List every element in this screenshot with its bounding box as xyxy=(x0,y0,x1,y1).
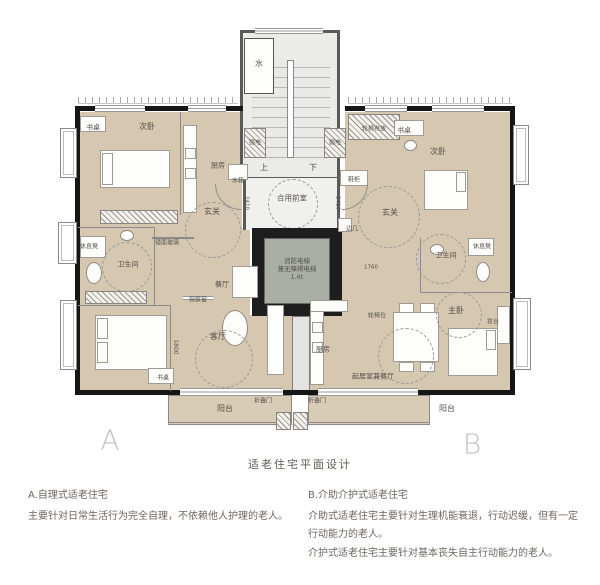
bay-window-a-master xyxy=(60,300,77,370)
b-toilet xyxy=(476,262,490,282)
b-kitchen-counter-top xyxy=(310,300,348,312)
partition-a-master-top xyxy=(78,305,170,306)
a-bed2-pillow xyxy=(102,153,113,185)
a-desk2-label: 书桌 xyxy=(157,374,169,382)
a-sink xyxy=(185,168,196,179)
duct-hatch-2 xyxy=(293,412,308,430)
legend-type-a: A.自理式适老住宅 主要针对日常生活行为完全自理，不依赖他人护理的老人。 xyxy=(28,487,290,526)
dimension-ticks-right xyxy=(348,97,512,104)
dim-1800: 1800 xyxy=(171,339,179,354)
legend-a-body: 主要针对日常生活行为完全自理，不依赖他人护理的老人。 xyxy=(28,508,290,527)
bay-window-b-master xyxy=(513,298,531,370)
legend-a-heading: A.自理式适老住宅 xyxy=(28,487,290,506)
bay-window-a-bath xyxy=(58,222,77,264)
bay-window-a-bedroom xyxy=(60,128,77,178)
fire-elevator-label: 消防电梯 兼无障碍电梯 1.6t xyxy=(278,257,317,281)
a-folding-door-label: 折叠门 xyxy=(254,397,272,405)
a-living-label: 客厅 xyxy=(210,332,226,342)
b-kitchen-label: 厨房 xyxy=(316,346,330,355)
window-a-top-2 xyxy=(188,105,226,112)
partition-a-bath-top xyxy=(78,227,154,228)
b-folding-door-label: 折叠门 xyxy=(308,397,326,405)
legend-type-b: B.介助介护式适老住宅 介助式适老住宅主要针对生理机能衰退，行动迟缓，但有一定行… xyxy=(308,487,580,563)
a-master-pillow-2 xyxy=(97,342,108,363)
a-wardrobe-2 xyxy=(85,291,147,304)
stair-divider xyxy=(287,60,294,158)
service-duct xyxy=(292,316,310,392)
bay-window-b-bedroom xyxy=(513,125,529,185)
a-mirror-glass-label: 镜面玻璃 xyxy=(155,239,179,247)
dimension-ticks-left xyxy=(78,97,238,104)
a-dining-label: 餐厅 xyxy=(215,281,229,290)
b-desk-chair xyxy=(404,140,417,151)
strong-electric-label: 强电 xyxy=(249,139,261,147)
unit-b-balcony xyxy=(308,395,430,425)
a-bedroom2-label: 次卧 xyxy=(139,122,155,132)
b-master-pillow xyxy=(486,330,496,350)
legend-b-heading: B.介助介护式适老住宅 xyxy=(308,487,580,506)
b-wheelchair-spot-label: 轮椅位 xyxy=(368,312,386,320)
b-bed2-pillow xyxy=(456,172,466,192)
a-wardrobe-1 xyxy=(100,210,178,224)
a-sofa xyxy=(267,305,284,375)
a-toilet xyxy=(86,262,102,284)
floorplan-image: 水上下合用前室消防电梯 兼无障碍电梯 1.6t强电弱电水箱鞋柜边几轮椅存放书桌次… xyxy=(0,0,600,585)
stairs-down-label: 下 xyxy=(309,163,317,173)
b-bedroom2-label: 次卧 xyxy=(430,147,446,157)
wheelchair-storage-label: 轮椅存放 xyxy=(362,125,386,133)
b-dining-chair-1 xyxy=(399,303,414,313)
dim-1760: 1760 xyxy=(364,265,378,272)
duct-hatch-1 xyxy=(276,412,291,430)
unit-a-marker: A xyxy=(100,424,119,457)
b-stove xyxy=(312,322,323,333)
a-observation-window-label: 观察窗 xyxy=(189,296,207,304)
water-tank-label: 水箱 xyxy=(232,177,244,185)
a-balcony-label: 阳台 xyxy=(217,404,233,414)
legend-b-body-2: 介护式适老住宅主要针对基本丧失自主行动能力的老人。 xyxy=(308,545,580,564)
partition-a-kitchen xyxy=(180,112,181,215)
stairs-up-label: 上 xyxy=(260,163,268,173)
a-kitchen-label: 厨房 xyxy=(211,162,225,171)
shoe-cabinet-label: 鞋柜 xyxy=(348,176,360,184)
a-stove xyxy=(185,148,196,159)
b-balcony-label: 阳台 xyxy=(439,404,455,414)
a-bathroom-label: 卫生间 xyxy=(118,261,139,270)
dim-2410-left: 2410 xyxy=(243,196,250,210)
b-master-bedroom-label: 主卧 xyxy=(448,306,464,316)
a-entry-label: 玄关 xyxy=(204,207,220,217)
a-rest-bench-label: 休息凳 xyxy=(80,243,98,251)
b-bathroom-label: 卫生间 xyxy=(436,252,457,261)
window-a-top-1 xyxy=(95,105,145,112)
window-b-top-1 xyxy=(365,105,407,112)
dim-2410-right: 2410 xyxy=(334,196,341,210)
a-desk-label: 书桌 xyxy=(86,124,100,133)
b-entry-label: 玄关 xyxy=(382,208,398,218)
a-master-pillow-1 xyxy=(97,318,108,339)
b-dressing-table-label: 妆台 xyxy=(487,318,499,326)
a-bath-sink xyxy=(120,230,134,241)
core-top-window xyxy=(255,28,323,34)
vestibule-turning-circle xyxy=(268,179,318,229)
b-rest-bench-label: 休息凳 xyxy=(473,243,491,251)
legend-b-body-1: 介助式适老住宅主要针对生理机能衰退，行动迟缓，但有一定行动能力的老人。 xyxy=(308,508,580,545)
shared-vestibule-label: 合用前室 xyxy=(277,193,307,202)
b-desk-label: 书桌 xyxy=(397,127,411,136)
a-dining-table xyxy=(232,266,258,298)
window-b-top-2 xyxy=(432,105,484,112)
side-table-label: 边几 xyxy=(346,225,358,233)
plan-caption: 适老住宅平面设计 xyxy=(0,456,600,472)
window-b-balcony-door xyxy=(318,388,418,396)
b-living-dining-label: 起居室兼餐厅 xyxy=(352,373,394,382)
b-dining-chair-2 xyxy=(420,303,435,313)
weak-electric-label: 弱电 xyxy=(329,139,341,147)
water-meter-label: 水 xyxy=(255,59,263,69)
window-a-balcony-door xyxy=(180,388,283,396)
